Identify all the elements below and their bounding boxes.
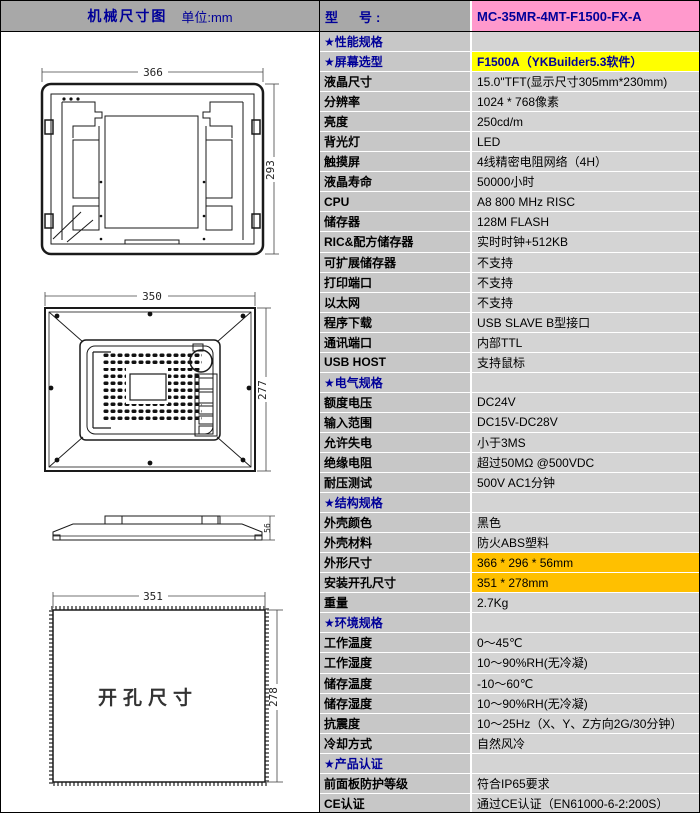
spec-value: 0～45℃ — [470, 633, 699, 652]
table-row: ★性能规格 — [320, 32, 699, 51]
table-row: 触摸屏4线精密电阻网络（4H） — [320, 151, 699, 171]
spec-sheet-page: 机械尺寸图 单位:mm 型 号: MC-35MR-4MT-F1500-FX-A … — [0, 0, 700, 813]
spec-label: 打印端口 — [320, 273, 470, 292]
dimension-label: 366 — [143, 66, 163, 79]
spec-label: 程序下载 — [320, 313, 470, 332]
drawing-header: 机械尺寸图 单位:mm — [1, 1, 319, 31]
table-row: 背光灯LED — [320, 131, 699, 151]
spec-value: 2.7Kg — [470, 593, 699, 612]
table-row: ★结构规格 — [320, 492, 699, 512]
cutout-label: 开孔尺寸 — [98, 686, 198, 709]
table-row: ★环境规格 — [320, 612, 699, 632]
spec-label: 绝缘电阻 — [320, 453, 470, 472]
spec-label: ★屏幕选型 — [320, 52, 470, 71]
spec-value: 10～90%RH(无冷凝) — [470, 694, 699, 713]
dimension-label: 293 — [264, 160, 277, 180]
spec-label: ★性能规格 — [320, 32, 470, 51]
spec-label: 输入范围 — [320, 413, 470, 432]
table-row: 冷却方式自然风冷 — [320, 733, 699, 753]
spec-label: 亮度 — [320, 112, 470, 131]
spec-value: A8 800 MHz RISC — [470, 192, 699, 211]
spec-label: 储存温度 — [320, 674, 470, 693]
table-row: 储存湿度10～90%RH(无冷凝) — [320, 693, 699, 713]
front-view-drawing: 366 — [5, 54, 305, 272]
table-row: 允许失电小于3MS — [320, 432, 699, 452]
table-row: CPUA8 800 MHz RISC — [320, 191, 699, 211]
header-row: 机械尺寸图 单位:mm 型 号: MC-35MR-4MT-F1500-FX-A — [1, 1, 699, 32]
table-row: 绝缘电阻超过50MΩ @500VDC — [320, 452, 699, 472]
spec-label: 分辨率 — [320, 92, 470, 111]
spec-label: 冷却方式 — [320, 734, 470, 753]
spec-value: USB SLAVE B型接口 — [470, 313, 699, 332]
spec-value: DC24V — [470, 393, 699, 412]
table-row: CE认证通过CE认证（EN61000-6-2:200S） — [320, 793, 699, 813]
model-value: MC-35MR-4MT-F1500-FX-A — [470, 1, 699, 31]
spec-value: 10～90%RH(无冷凝) — [470, 653, 699, 672]
spec-label: 液晶寿命 — [320, 172, 470, 191]
spec-value: 防火ABS塑料 — [470, 533, 699, 552]
spec-value: 自然风冷 — [470, 734, 699, 753]
table-row: 液晶尺寸15.0"TFT(显示尺寸305mm*230mm) — [320, 71, 699, 91]
table-row: 亮度250cd/m — [320, 111, 699, 131]
spec-label: 储存器 — [320, 212, 470, 231]
table-row: 可扩展储存器不支持 — [320, 252, 699, 272]
spec-label: 储存湿度 — [320, 694, 470, 713]
spec-value — [470, 493, 699, 512]
spec-table: ★性能规格★屏幕选型F1500A（YKBuilder5.3软件）液晶尺寸15.0… — [319, 32, 699, 813]
model-label: 型 号: — [319, 1, 470, 31]
spec-value — [470, 32, 699, 51]
drawing-title: 机械尺寸图 — [87, 6, 167, 26]
table-row: 通讯端口内部TTL — [320, 332, 699, 352]
table-row: 液晶寿命50000小时 — [320, 171, 699, 191]
spec-label: 液晶尺寸 — [320, 72, 470, 91]
spec-value: 不支持 — [470, 293, 699, 312]
spec-label: 安装开孔尺寸 — [320, 573, 470, 592]
cutout-drawing: 351 开孔尺寸 278 — [5, 582, 305, 813]
spec-value: -10～60℃ — [470, 674, 699, 693]
spec-label: 以太网 — [320, 293, 470, 312]
dimension-label: 278 — [267, 687, 280, 707]
spec-value: 4线精密电阻网络（4H） — [470, 152, 699, 171]
side-view-drawing: 56 — [5, 510, 305, 562]
dimension-label: 351 — [143, 590, 163, 603]
spec-value: DC15V-DC28V — [470, 413, 699, 432]
table-row: 程序下载USB SLAVE B型接口 — [320, 312, 699, 332]
spec-value: 50000小时 — [470, 172, 699, 191]
dimension-label: 56 — [263, 523, 272, 533]
table-row: ★屏幕选型F1500A（YKBuilder5.3软件） — [320, 51, 699, 71]
spec-label: 抗震度 — [320, 714, 470, 733]
spec-value: F1500A（YKBuilder5.3软件） — [470, 52, 699, 71]
table-row: USB HOST支持鼠标 — [320, 352, 699, 372]
spec-label: CE认证 — [320, 794, 470, 813]
spec-value: 500V AC1分钟 — [470, 473, 699, 492]
table-row: 外形尺寸366 * 296 * 56mm — [320, 552, 699, 572]
spec-value: 支持鼠标 — [470, 353, 699, 372]
spec-label: CPU — [320, 192, 470, 211]
dimension-label: 277 — [256, 380, 269, 400]
drawings-panel: 366 — [1, 32, 319, 813]
spec-value: 符合IP65要求 — [470, 774, 699, 793]
table-row: RIC&配方储存器实时时钟+512KB — [320, 231, 699, 251]
spec-value: 实时时钟+512KB — [470, 232, 699, 251]
table-row: 工作温度0～45℃ — [320, 632, 699, 652]
spec-value: 250cd/m — [470, 112, 699, 131]
spec-value — [470, 754, 699, 773]
spec-value: LED — [470, 132, 699, 151]
table-row: 外壳颜色黑色 — [320, 512, 699, 532]
table-row: 输入范围DC15V-DC28V — [320, 412, 699, 432]
spec-label: 通讯端口 — [320, 333, 470, 352]
spec-value: 366 * 296 * 56mm — [470, 553, 699, 572]
spec-label: 重量 — [320, 593, 470, 612]
spec-value: 黑色 — [470, 513, 699, 532]
page-body: 366 — [1, 32, 699, 813]
table-row: ★产品认证 — [320, 753, 699, 773]
spec-table-rows: ★性能规格★屏幕选型F1500A（YKBuilder5.3软件）液晶尺寸15.0… — [320, 32, 699, 813]
table-row: 储存器128M FLASH — [320, 211, 699, 231]
back-view-drawing: 350 — [5, 282, 305, 497]
table-row: 重量2.7Kg — [320, 592, 699, 612]
table-row: 前面板防护等级符合IP65要求 — [320, 773, 699, 793]
spec-label: ★环境规格 — [320, 613, 470, 632]
spec-label: 外壳材料 — [320, 533, 470, 552]
table-row: 以太网不支持 — [320, 292, 699, 312]
table-row: 抗震度10～25Hz（X、Y、Z方向2G/30分钟） — [320, 713, 699, 733]
spec-value — [470, 373, 699, 392]
spec-label: 外形尺寸 — [320, 553, 470, 572]
spec-label: 允许失电 — [320, 433, 470, 452]
spec-value: 1024 * 768像素 — [470, 92, 699, 111]
table-row: 储存温度-10～60℃ — [320, 673, 699, 693]
spec-label: ★电气规格 — [320, 373, 470, 392]
table-row: 额度电压DC24V — [320, 392, 699, 412]
spec-label: ★结构规格 — [320, 493, 470, 512]
spec-label: 背光灯 — [320, 132, 470, 151]
spec-label: 耐压测试 — [320, 473, 470, 492]
table-row: 打印端口不支持 — [320, 272, 699, 292]
spec-value: 小于3MS — [470, 433, 699, 452]
spec-label: RIC&配方储存器 — [320, 232, 470, 251]
table-row: 安装开孔尺寸351 * 278mm — [320, 572, 699, 592]
spec-value: 内部TTL — [470, 333, 699, 352]
spec-label: 外壳颜色 — [320, 513, 470, 532]
spec-value: 不支持 — [470, 253, 699, 272]
spec-value: 通过CE认证（EN61000-6-2:200S） — [470, 794, 699, 813]
table-row: ★电气规格 — [320, 372, 699, 392]
table-row: 工作湿度10～90%RH(无冷凝) — [320, 652, 699, 672]
spec-label: 可扩展储存器 — [320, 253, 470, 272]
spec-value: 不支持 — [470, 273, 699, 292]
spec-label: 前面板防护等级 — [320, 774, 470, 793]
table-row: 耐压测试500V AC1分钟 — [320, 472, 699, 492]
spec-label: 触摸屏 — [320, 152, 470, 171]
spec-label: 工作湿度 — [320, 653, 470, 672]
spec-label: 工作温度 — [320, 633, 470, 652]
drawing-unit: 单位:mm — [181, 7, 232, 26]
spec-value: 15.0"TFT(显示尺寸305mm*230mm) — [470, 72, 699, 91]
table-row: 分辨率1024 * 768像素 — [320, 91, 699, 111]
spec-value: 351 * 278mm — [470, 573, 699, 592]
dimension-label: 350 — [142, 290, 162, 303]
spec-label: 额度电压 — [320, 393, 470, 412]
spec-value: 10～25Hz（X、Y、Z方向2G/30分钟） — [470, 714, 699, 733]
spec-value: 128M FLASH — [470, 212, 699, 231]
spec-value: 超过50MΩ @500VDC — [470, 453, 699, 472]
spec-label: ★产品认证 — [320, 754, 470, 773]
table-row: 外壳材料防火ABS塑料 — [320, 532, 699, 552]
spec-label: USB HOST — [320, 353, 470, 372]
spec-value — [470, 613, 699, 632]
